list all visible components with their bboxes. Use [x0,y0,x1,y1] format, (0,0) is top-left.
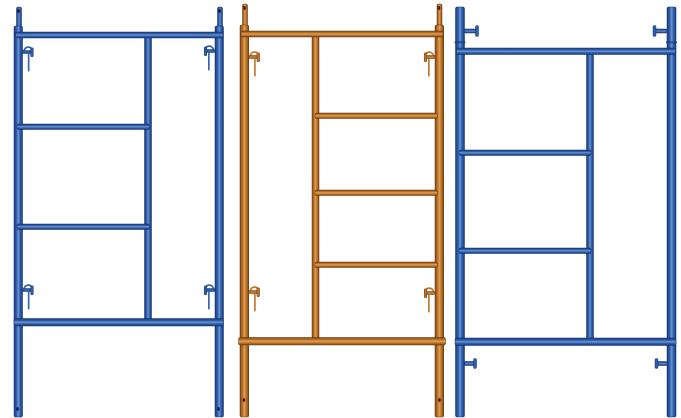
pin-hole [243,398,246,402]
rung-1 [315,113,438,119]
left-post [240,25,249,417]
bottom-ledger [14,319,224,327]
pin-hole [218,9,221,13]
pin-hole [438,6,441,10]
background [0,0,681,418]
collar-seam-left [455,41,466,44]
center-upright [587,54,594,341]
lower-rung [459,248,591,254]
top-ledger [457,48,676,55]
upper-rung [17,124,150,130]
right-post [215,26,224,417]
center-upright [312,33,319,341]
right-post [667,7,676,417]
pin-hole [243,6,246,10]
bottom-ledger [239,338,446,346]
pin-hole [17,9,20,13]
right-post [435,25,444,417]
top-ledger [16,32,224,38]
rung-3 [315,262,438,268]
collar-seam-right [666,41,677,44]
center-upright [145,34,152,323]
bottom-ledger [455,338,676,346]
upper-rung [459,150,591,156]
pin-hole [16,407,19,411]
scene [0,0,681,418]
pin-hole [438,398,441,402]
left-post [14,26,23,417]
pin-hole [217,407,220,411]
lower-rung [17,224,150,230]
left-post [456,7,465,417]
top-ledger [241,31,443,37]
rung-2 [315,190,438,196]
scaffold-frames-photo [0,0,681,418]
